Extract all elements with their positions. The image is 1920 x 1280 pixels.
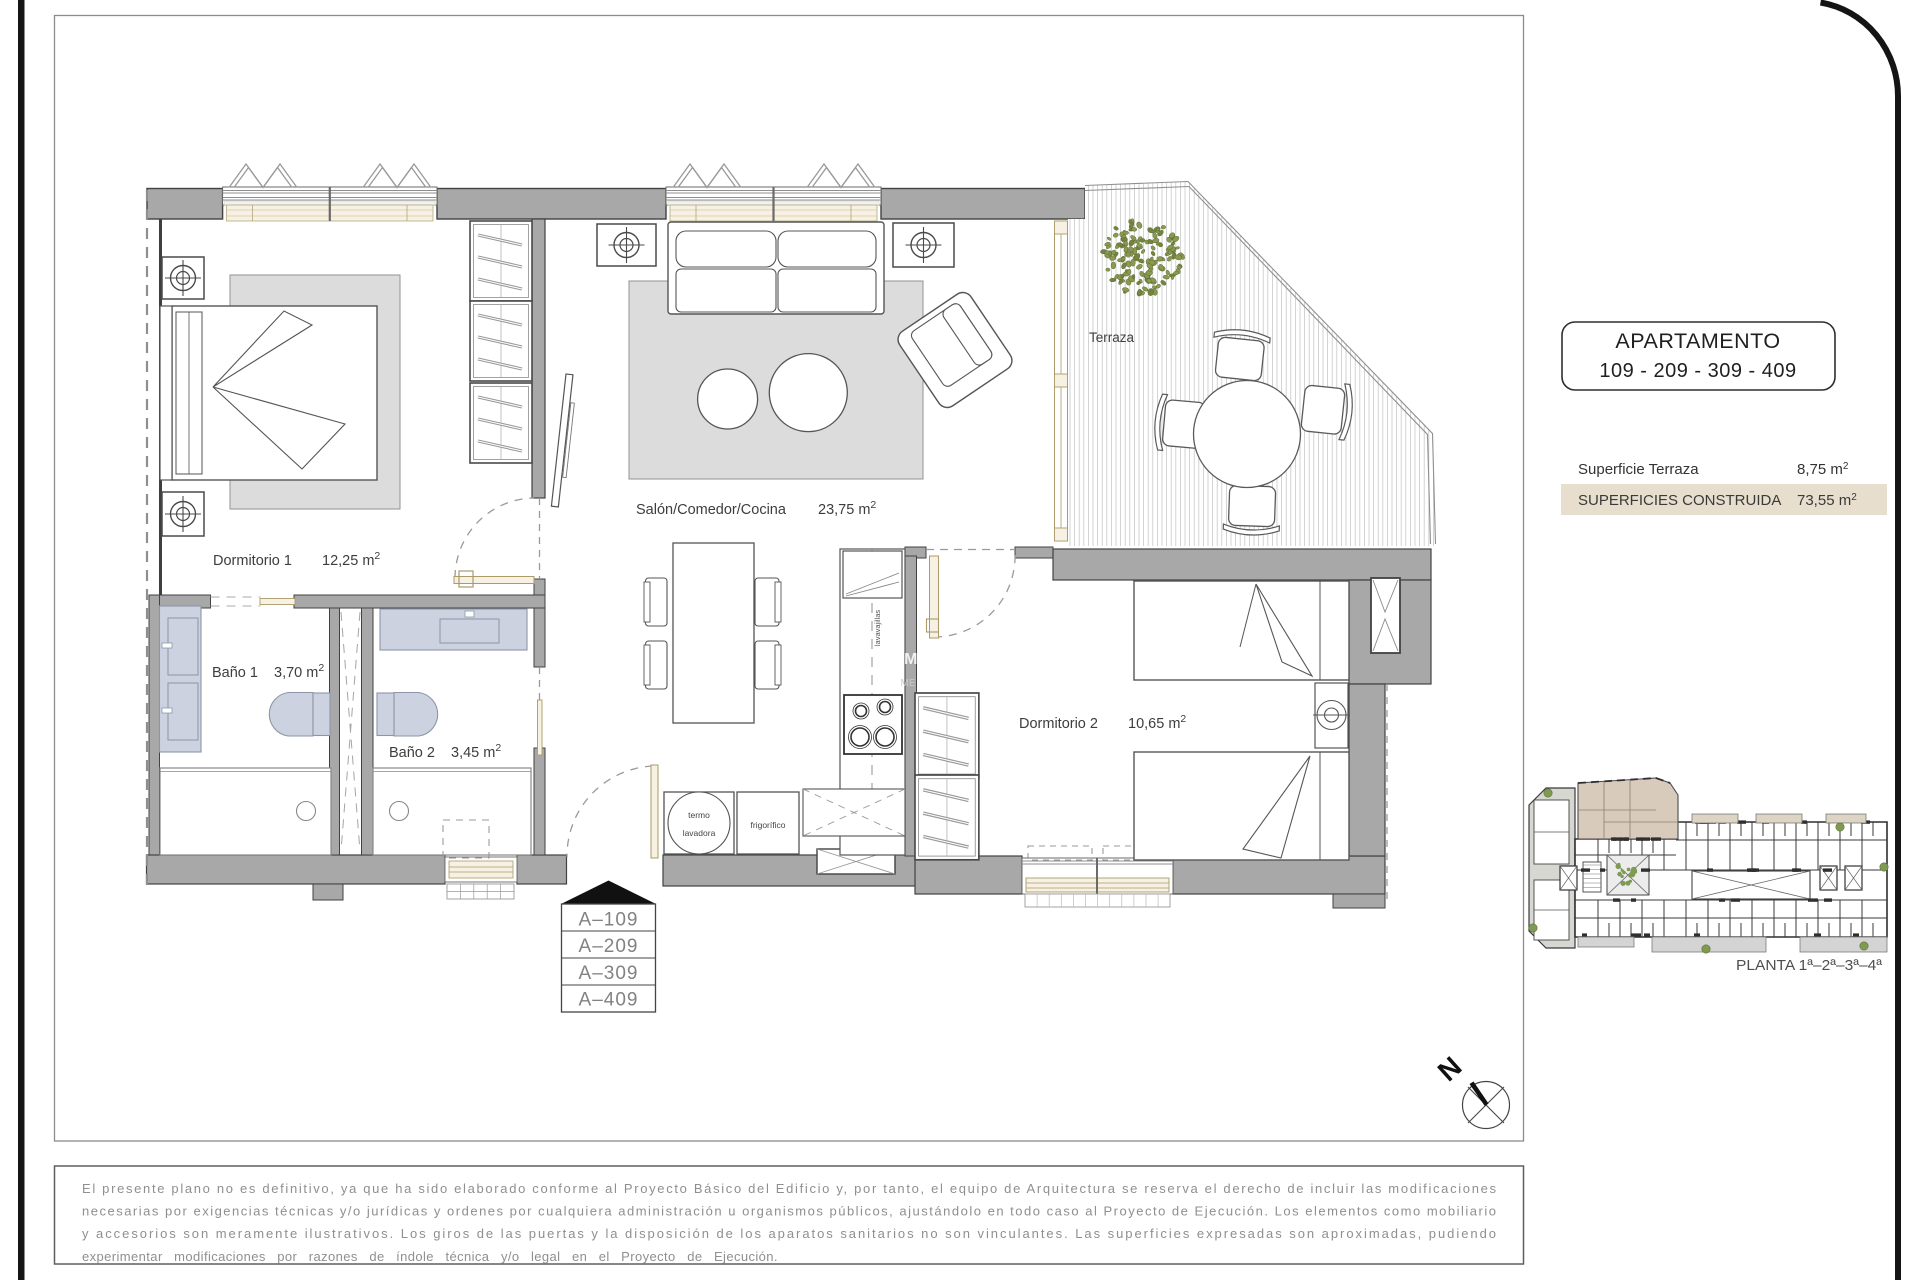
svg-text:termo: termo: [688, 810, 710, 820]
svg-text:lavadora: lavadora: [683, 828, 716, 838]
svg-text:10,65 m2: 10,65 m2: [1128, 713, 1186, 732]
svg-text:APARTAMENTO: APARTAMENTO: [1615, 329, 1780, 353]
svg-text:8,75 m2: 8,75 m2: [1797, 461, 1849, 478]
svg-text:SUPERFICIES CONSTRUIDA: SUPERFICIES CONSTRUIDA: [1578, 492, 1781, 509]
svg-text:A–409: A–409: [579, 990, 639, 1011]
svg-text:Salón/Comedor/Cocina: Salón/Comedor/Cocina: [636, 502, 787, 518]
svg-text:ME: ME: [901, 678, 916, 689]
svg-text:Baño 1: Baño 1: [212, 665, 258, 681]
svg-text:3,45 m2: 3,45 m2: [451, 742, 501, 761]
svg-text:A–109: A–109: [579, 910, 639, 931]
svg-text:A–209: A–209: [579, 936, 639, 957]
svg-text:Dormitorio 2: Dormitorio 2: [1019, 716, 1098, 732]
svg-text:Dormitorio 1: Dormitorio 1: [213, 553, 292, 569]
svg-text:lavavajillas: lavavajillas: [873, 610, 882, 647]
svg-text:Baño 2: Baño 2: [389, 745, 435, 761]
svg-text:3,70 m2: 3,70 m2: [274, 662, 324, 681]
svg-text:Terraza: Terraza: [1089, 330, 1135, 345]
svg-text:109 - 209 - 309 - 409: 109 - 209 - 309 - 409: [1599, 360, 1796, 382]
svg-text:23,75 m2: 23,75 m2: [818, 499, 876, 518]
svg-text:A–309: A–309: [579, 963, 639, 984]
svg-text:y accesorios son meramente ilu: y accesorios son meramente ilustrativos.…: [82, 1226, 1496, 1241]
svg-text:12,25 m2: 12,25 m2: [322, 550, 380, 569]
svg-text:El presente plano no es defini: El presente plano no es definitivo, ya q…: [82, 1181, 1497, 1196]
svg-text:experimentar modificaciones po: experimentar modificaciones por razones …: [82, 1249, 778, 1264]
svg-text:frigorífico: frigorífico: [751, 820, 786, 830]
svg-text:PLANTA 1ª–2ª–3ª–4ª: PLANTA 1ª–2ª–3ª–4ª: [1736, 957, 1882, 974]
svg-text:73,55 m2: 73,55 m2: [1797, 492, 1857, 509]
svg-text:necesarias por exigencias técn: necesarias por exigencias técnicas y/o j…: [82, 1204, 1496, 1219]
svg-text:Superficie Terraza: Superficie Terraza: [1578, 461, 1699, 478]
svg-text:M: M: [904, 651, 917, 668]
